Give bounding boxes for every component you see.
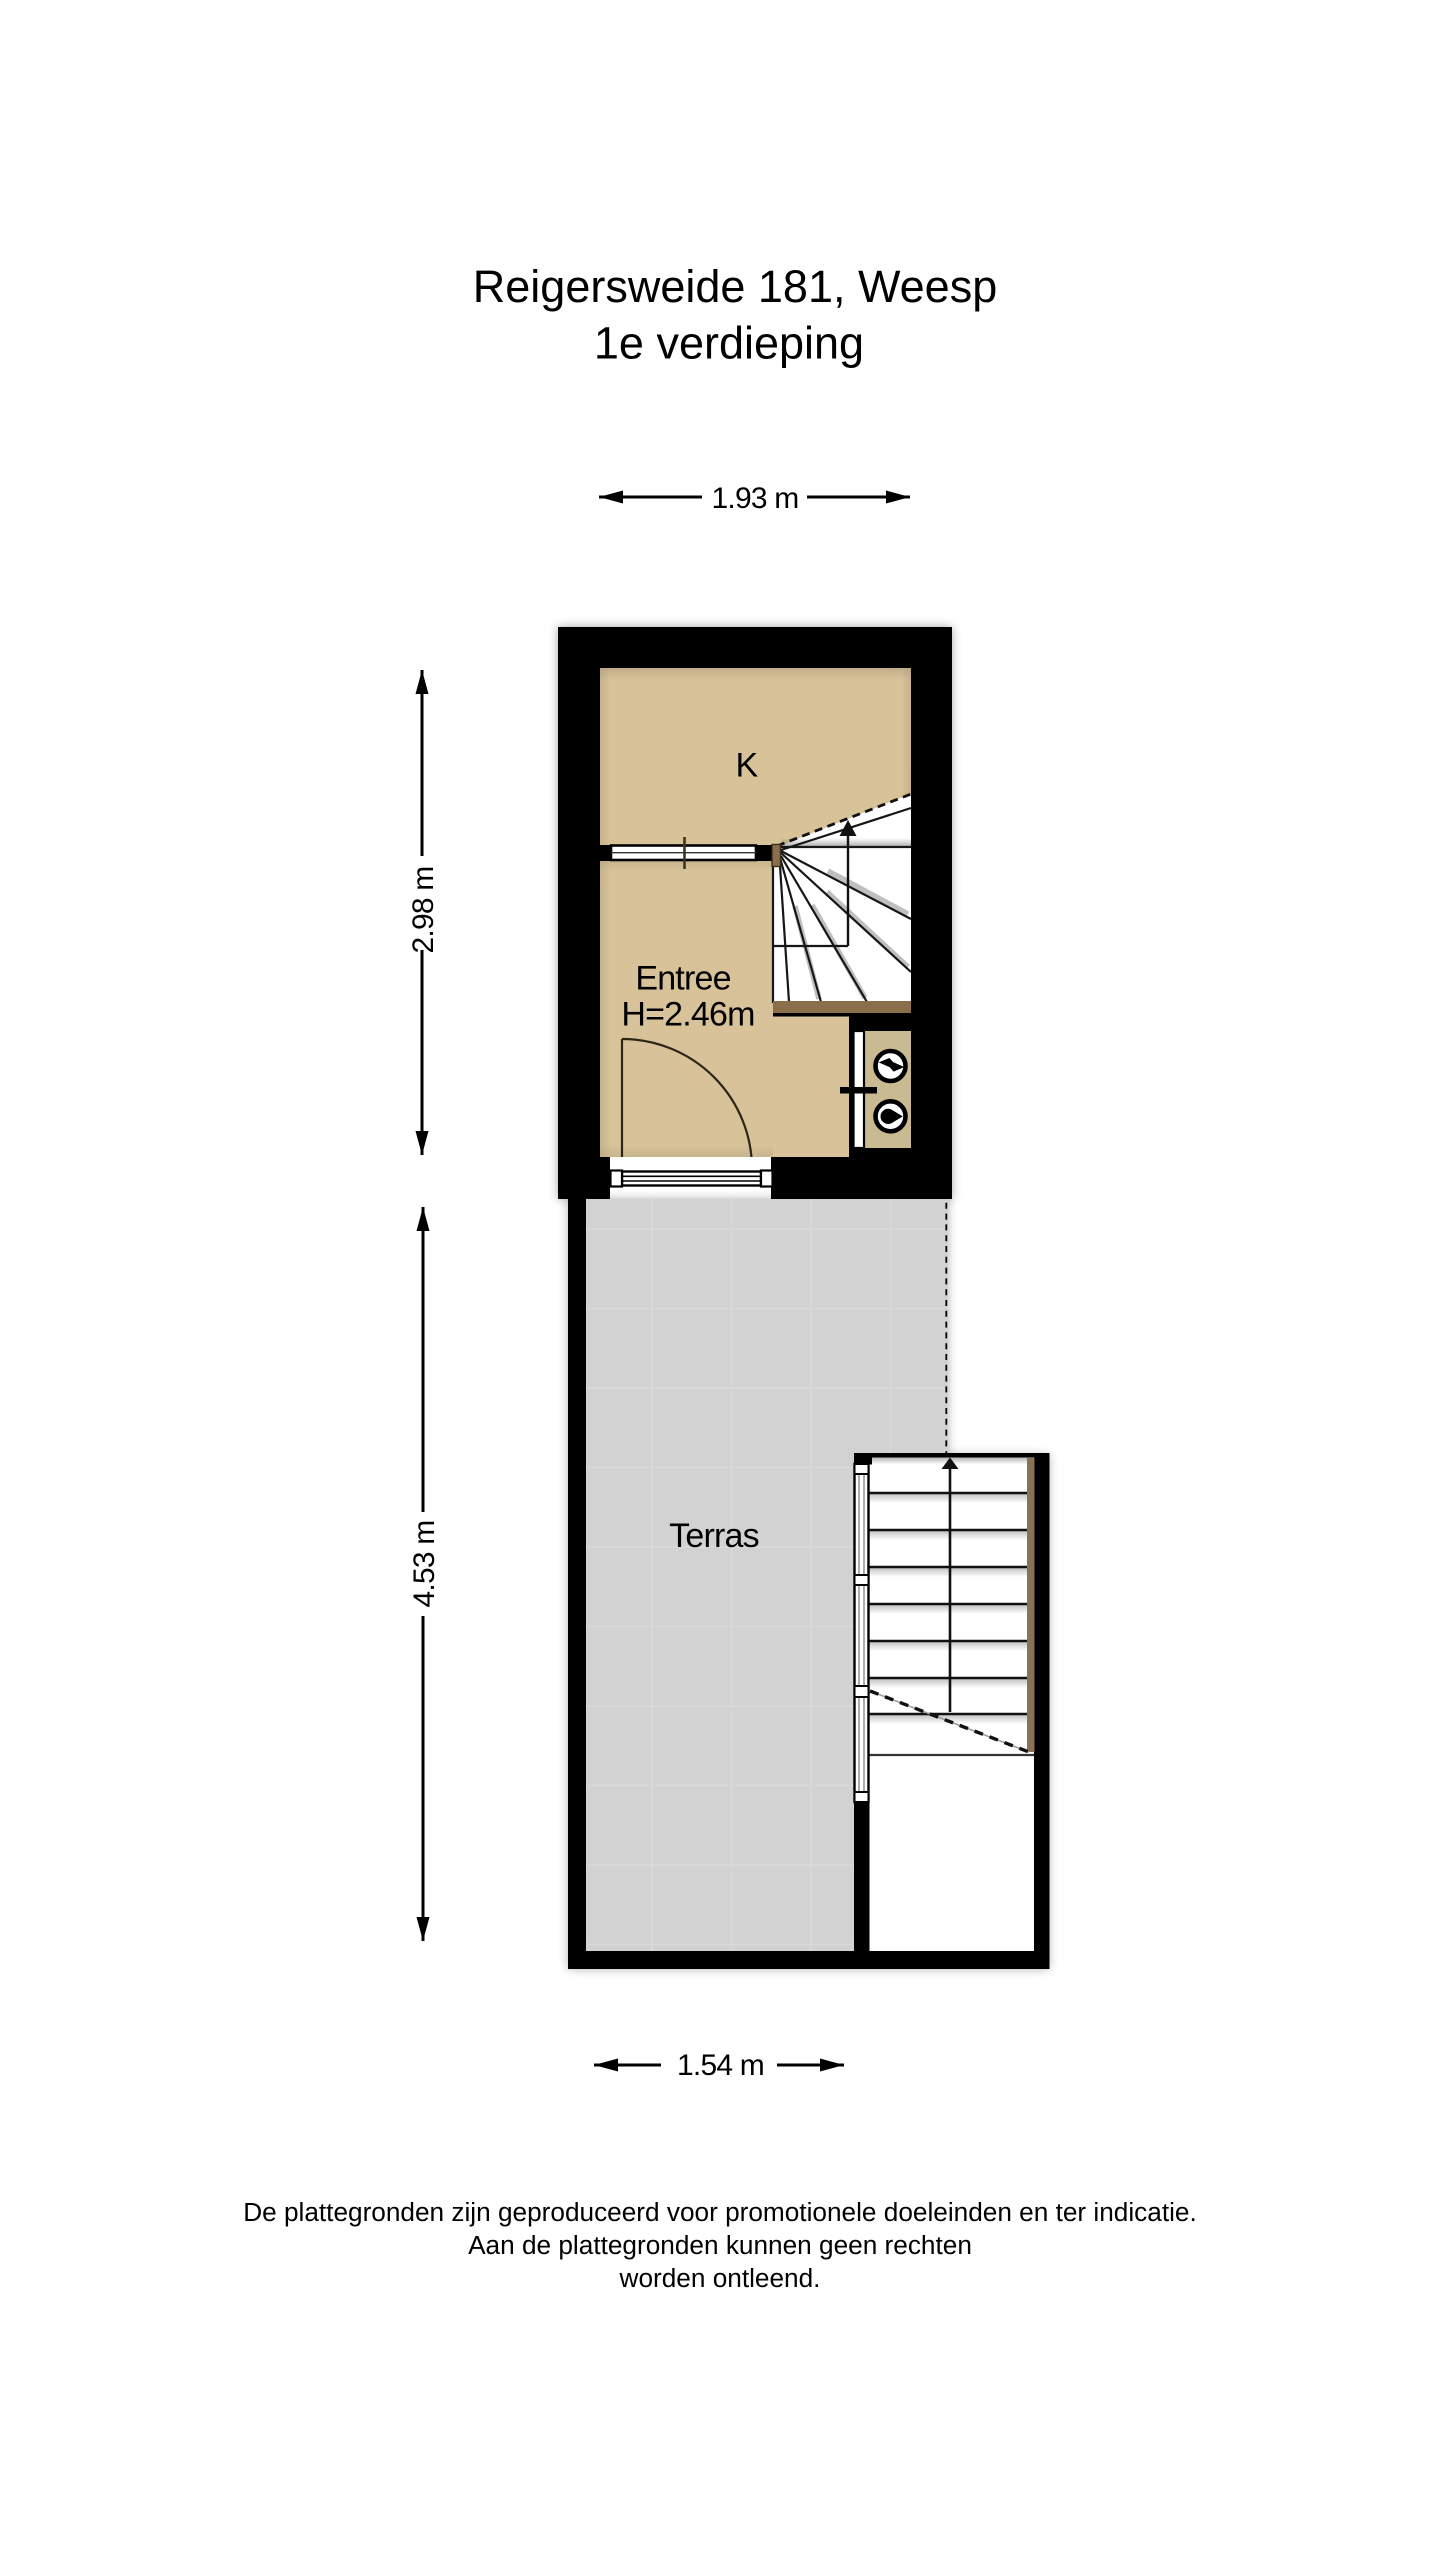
svg-text:1.93 m: 1.93 m — [712, 482, 799, 515]
svg-text:Entree: Entree — [635, 960, 730, 998]
svg-text:Reigersweide 181, Weesp: Reigersweide 181, Weesp — [473, 261, 997, 312]
svg-text:worden ontleend.: worden ontleend. — [619, 2263, 821, 2293]
svg-text:H=2.46m: H=2.46m — [621, 996, 754, 1034]
svg-text:De plattegronden zijn geproduc: De plattegronden zijn geproduceerd voor … — [243, 2197, 1197, 2227]
svg-text:K: K — [736, 747, 759, 785]
svg-text:1.54 m: 1.54 m — [677, 2049, 764, 2082]
svg-text:2.98 m: 2.98 m — [407, 867, 440, 954]
svg-text:1e verdieping: 1e verdieping — [594, 318, 864, 369]
svg-text:Aan de plattegronden kunnen ge: Aan de plattegronden kunnen geen rechten — [468, 2230, 972, 2260]
svg-text:Terras: Terras — [669, 1517, 759, 1555]
svg-text:4.53 m: 4.53 m — [408, 1521, 441, 1608]
